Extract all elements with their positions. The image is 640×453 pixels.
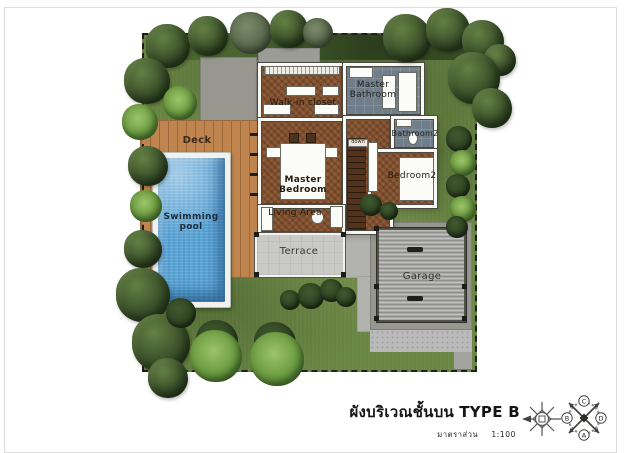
garage-vent-2 [407, 296, 423, 301]
window-mark [250, 193, 258, 196]
hall-closet [368, 142, 378, 192]
label-bathroom2: Bathroom2 [389, 129, 441, 138]
compass-point-top: C [582, 398, 587, 406]
closet-units [264, 66, 340, 75]
window-mark [250, 173, 258, 176]
label-terrace: Terrace [269, 246, 329, 258]
garage-post [462, 226, 467, 231]
compass-point-left: B [565, 415, 569, 423]
window-mark [250, 133, 258, 136]
garage-post [462, 316, 467, 321]
label-swimming-pool: Swimming pool [156, 212, 226, 233]
bath-counter [349, 67, 373, 78]
plan-title-thai: ผังบริเวณชั้นบน [349, 403, 454, 421]
terrace-post [254, 232, 259, 237]
compass-point-bottom: A [582, 432, 587, 440]
title-block: ผังบริเวณชั้นบน TYPE B มาตราส่วน 1:100 [330, 400, 520, 441]
north-arrow-icon [521, 398, 563, 440]
label-stairs-down: down [348, 139, 368, 147]
plan-title-type: TYPE B [459, 403, 520, 421]
staircase [347, 138, 366, 230]
closet-island-1 [286, 86, 316, 96]
terrace-post [341, 232, 346, 237]
label-bedroom2: Bedroom2 [384, 171, 440, 181]
scale-caption: มาตราส่วน [437, 430, 478, 439]
label-master-bedroom: Master Bedroom [273, 175, 333, 196]
garage-post [374, 316, 379, 321]
garage-vent-1 [407, 247, 423, 252]
label-deck: Deck [167, 135, 227, 147]
pillow-right [306, 133, 316, 143]
pillow-left [289, 133, 299, 143]
label-garage: Garage [392, 271, 452, 283]
terrace-post [341, 272, 346, 277]
label-master-bathroom: Master Bathroom [343, 80, 403, 101]
bath2-counter [396, 119, 412, 127]
sofa-right [330, 206, 343, 228]
scale-value: 1:100 [491, 430, 516, 439]
site-plan-page: Deck Swimming pool Walk-in closet Master… [0, 0, 640, 453]
garage-post [374, 284, 379, 289]
terrace-post [254, 272, 259, 277]
compass-point-right: D [598, 415, 603, 423]
compass-rose-icon: C D A B [560, 394, 608, 442]
garage-post [374, 226, 379, 231]
window-mark [250, 153, 258, 156]
garage-post [462, 284, 467, 289]
label-walk-in-closet: Walk-in closet [263, 98, 343, 108]
closet-island-2 [322, 86, 339, 96]
label-living-area: Living Area [262, 208, 328, 218]
